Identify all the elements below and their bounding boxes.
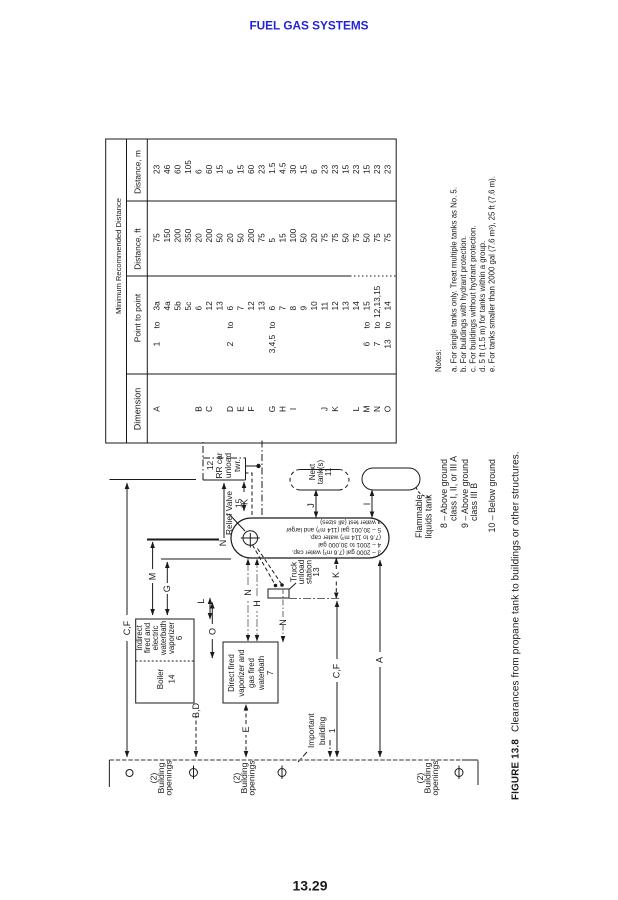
svg-text:Relief Valve: Relief Valve: [224, 491, 234, 535]
svg-text:15: 15: [362, 301, 372, 311]
svg-text:6: 6: [175, 636, 184, 640]
svg-text:B: B: [194, 406, 204, 412]
svg-text:6: 6: [194, 306, 204, 311]
svg-text:13: 13: [312, 567, 321, 577]
svg-text:K: K: [330, 406, 340, 412]
svg-text:C,F: C,F: [332, 663, 342, 678]
svg-text:200: 200: [173, 228, 183, 242]
svg-text:Distance, m: Distance, m: [133, 150, 143, 194]
svg-text:9: 9: [299, 306, 309, 311]
svg-text:3,4,5: 3,4,5: [267, 334, 277, 353]
svg-text:75: 75: [372, 233, 382, 243]
svg-text:20: 20: [225, 233, 235, 243]
svg-text:E: E: [241, 726, 251, 732]
svg-text:b. For buildings with hydrant: b. For buildings with hydrant protection…: [459, 236, 468, 372]
svg-text:D: D: [225, 406, 235, 412]
svg-text:15: 15: [234, 498, 244, 508]
svg-text:Distance, ft: Distance, ft: [133, 228, 143, 270]
svg-text:liquids tank: liquids tank: [424, 494, 434, 539]
svg-text:23: 23: [257, 164, 267, 174]
svg-text:J: J: [320, 407, 330, 411]
svg-text:H: H: [278, 406, 288, 412]
svg-text:150: 150: [162, 228, 172, 242]
svg-text:2: 2: [225, 341, 235, 346]
svg-text:75: 75: [330, 233, 340, 243]
svg-text:I: I: [362, 503, 372, 506]
svg-text:6: 6: [362, 341, 372, 346]
svg-text:e. For tanks smaller than 2000: e. For tanks smaller than 2000 gal (7.6 …: [488, 176, 497, 372]
svg-text:1: 1: [328, 728, 337, 733]
svg-text:23: 23: [372, 164, 382, 174]
svg-text:3 – 2000 gal (7.6 m³) water ca: 3 – 2000 gal (7.6 m³) water cap.: [291, 549, 381, 556]
svg-text:O: O: [383, 405, 393, 412]
svg-text:G: G: [162, 585, 172, 592]
svg-text:to: to: [383, 321, 393, 328]
svg-text:15: 15: [299, 164, 309, 174]
svg-text:5 – 30,001 gal (114 m³) and la: 5 – 30,001 gal (114 m³) and larger: [286, 526, 381, 533]
svg-text:13.29: 13.29: [292, 878, 327, 894]
svg-text:to: to: [372, 321, 382, 328]
svg-text:Dimension: Dimension: [133, 388, 143, 431]
svg-text:to: to: [362, 321, 372, 328]
svg-text:FUEL GAS SYSTEMS: FUEL GAS SYSTEMS: [249, 19, 368, 33]
svg-text:14: 14: [351, 301, 361, 311]
svg-text:8 – Above ground: 8 – Above ground: [439, 459, 449, 528]
svg-text:23: 23: [330, 164, 340, 174]
svg-text:7: 7: [236, 306, 246, 311]
svg-text:60: 60: [246, 164, 256, 174]
svg-text:23: 23: [383, 164, 393, 174]
svg-text:7: 7: [372, 341, 382, 346]
svg-text:11: 11: [324, 467, 333, 476]
svg-text:15: 15: [278, 233, 288, 243]
svg-text:7: 7: [278, 306, 288, 311]
svg-text:H: H: [252, 600, 262, 607]
svg-text:K: K: [331, 572, 341, 578]
svg-text:L: L: [196, 599, 206, 604]
svg-text:(7.6 to 114 m³) water cap.: (7.6 to 114 m³) water cap.: [309, 534, 381, 541]
svg-text:105: 105: [183, 160, 193, 174]
svg-text:75: 75: [383, 233, 393, 243]
svg-text:a water test (all sizes): a water test (all sizes): [320, 519, 381, 526]
svg-text:12: 12: [330, 301, 340, 311]
svg-text:G: G: [267, 406, 277, 412]
svg-text:5: 5: [267, 238, 277, 243]
svg-text:50: 50: [362, 233, 372, 243]
svg-text:N: N: [278, 619, 288, 626]
svg-text:J: J: [306, 503, 316, 508]
svg-text:75: 75: [320, 233, 330, 243]
svg-text:6: 6: [225, 169, 235, 174]
svg-text:Point to point: Point to point: [133, 293, 143, 342]
svg-text:13: 13: [383, 339, 393, 349]
svg-text:twr.: twr.: [232, 459, 242, 472]
svg-text:20: 20: [194, 233, 204, 243]
svg-text:15: 15: [362, 164, 372, 174]
svg-text:6: 6: [194, 169, 204, 174]
svg-text:B,D: B,D: [191, 703, 201, 719]
svg-text:4.5: 4.5: [278, 162, 288, 174]
svg-text:50: 50: [341, 233, 351, 243]
svg-text:to: to: [152, 321, 162, 328]
svg-text:50: 50: [236, 233, 246, 243]
svg-text:1: 1: [152, 341, 162, 346]
svg-text:to: to: [267, 321, 277, 328]
svg-text:30: 30: [288, 164, 298, 174]
svg-text:23: 23: [320, 164, 330, 174]
svg-text:waterbath: waterbath: [257, 656, 266, 691]
svg-text:10 – Below ground: 10 – Below ground: [487, 459, 497, 532]
svg-text:gas fired: gas fired: [247, 658, 256, 688]
svg-text:13: 13: [257, 301, 267, 311]
svg-text:15: 15: [236, 164, 246, 174]
svg-text:10: 10: [309, 301, 319, 311]
svg-text:12: 12: [204, 301, 214, 311]
svg-text:350: 350: [183, 228, 193, 242]
svg-text:13: 13: [341, 301, 351, 311]
svg-text:8: 8: [288, 306, 298, 311]
svg-text:a. For single tanks only. Trea: a. For single tanks only. Treat multiple…: [450, 187, 459, 372]
svg-text:50: 50: [299, 233, 309, 243]
svg-text:I: I: [288, 408, 298, 410]
svg-text:Clearances from propane tank t: Clearances from propane tank to building…: [511, 451, 522, 732]
svg-text:F: F: [246, 406, 256, 411]
svg-text:60: 60: [204, 164, 214, 174]
svg-text:23: 23: [152, 164, 162, 174]
svg-text:class I, II, or III A: class I, II, or III A: [449, 456, 459, 521]
svg-text:46: 46: [162, 164, 172, 174]
svg-text:4 – 2001 to 30,000 gal: 4 – 2001 to 30,000 gal: [318, 541, 381, 548]
svg-text:15: 15: [215, 164, 225, 174]
svg-text:Important: Important: [307, 713, 316, 748]
svg-text:FIGURE 13.8: FIGURE 13.8: [511, 739, 522, 800]
svg-text:4a: 4a: [162, 301, 172, 311]
svg-text:L: L: [351, 406, 361, 411]
svg-text:15: 15: [341, 164, 351, 174]
svg-text:A: A: [152, 406, 162, 412]
svg-text:14: 14: [383, 301, 393, 311]
svg-text:1.5: 1.5: [267, 162, 277, 174]
svg-text:3a: 3a: [152, 301, 162, 311]
svg-text:d. 5 ft (1.5 m) for tanks with: d. 5 ft (1.5 m) for tanks within a group…: [478, 241, 487, 372]
svg-text:75: 75: [152, 233, 162, 243]
svg-text:O: O: [207, 628, 217, 635]
svg-text:50: 50: [215, 233, 225, 243]
svg-text:C,F: C,F: [122, 620, 132, 635]
svg-text:M: M: [362, 405, 372, 412]
svg-text:openings: openings: [430, 760, 440, 796]
svg-text:N: N: [372, 406, 382, 412]
svg-text:12,13,15: 12,13,15: [372, 285, 382, 318]
svg-text:6: 6: [267, 306, 277, 311]
svg-text:20: 20: [309, 233, 319, 243]
svg-text:openings: openings: [164, 760, 174, 796]
svg-text:C: C: [204, 406, 214, 412]
svg-text:60: 60: [173, 164, 183, 174]
svg-text:Direct fired: Direct fired: [227, 654, 236, 692]
svg-text:100: 100: [288, 228, 298, 242]
svg-text:75: 75: [257, 233, 267, 243]
svg-text:Notes:: Notes:: [434, 349, 443, 372]
svg-text:7: 7: [266, 671, 275, 675]
svg-text:N: N: [243, 589, 253, 596]
svg-text:N: N: [218, 540, 228, 547]
svg-text:Boiler: Boiler: [156, 668, 165, 689]
svg-text:to: to: [225, 321, 235, 328]
svg-text:11: 11: [320, 302, 330, 311]
svg-text:13: 13: [215, 301, 225, 311]
svg-text:75: 75: [351, 233, 361, 243]
svg-text:200: 200: [246, 228, 256, 242]
svg-text:E: E: [236, 406, 246, 412]
svg-text:M: M: [148, 573, 158, 581]
svg-text:6: 6: [225, 306, 235, 311]
svg-text:14: 14: [168, 674, 177, 683]
svg-text:5c: 5c: [183, 302, 193, 311]
svg-text:6: 6: [309, 169, 319, 174]
svg-text:Minimum Recommended Distance: Minimum Recommended Distance: [114, 198, 123, 314]
svg-text:12: 12: [246, 301, 256, 311]
svg-text:class III B: class III B: [469, 483, 479, 521]
svg-text:23: 23: [351, 164, 361, 174]
svg-text:200: 200: [204, 228, 214, 242]
svg-text:Flammable: Flammable: [414, 494, 424, 538]
svg-text:building: building: [318, 716, 327, 745]
svg-text:c. For buildings without hydra: c. For buildings without hydrant protect…: [469, 226, 478, 373]
svg-text:openings: openings: [247, 760, 257, 796]
svg-text:vaporizer and: vaporizer and: [237, 649, 246, 696]
svg-text:A: A: [375, 657, 385, 663]
svg-text:5b: 5b: [173, 301, 183, 311]
